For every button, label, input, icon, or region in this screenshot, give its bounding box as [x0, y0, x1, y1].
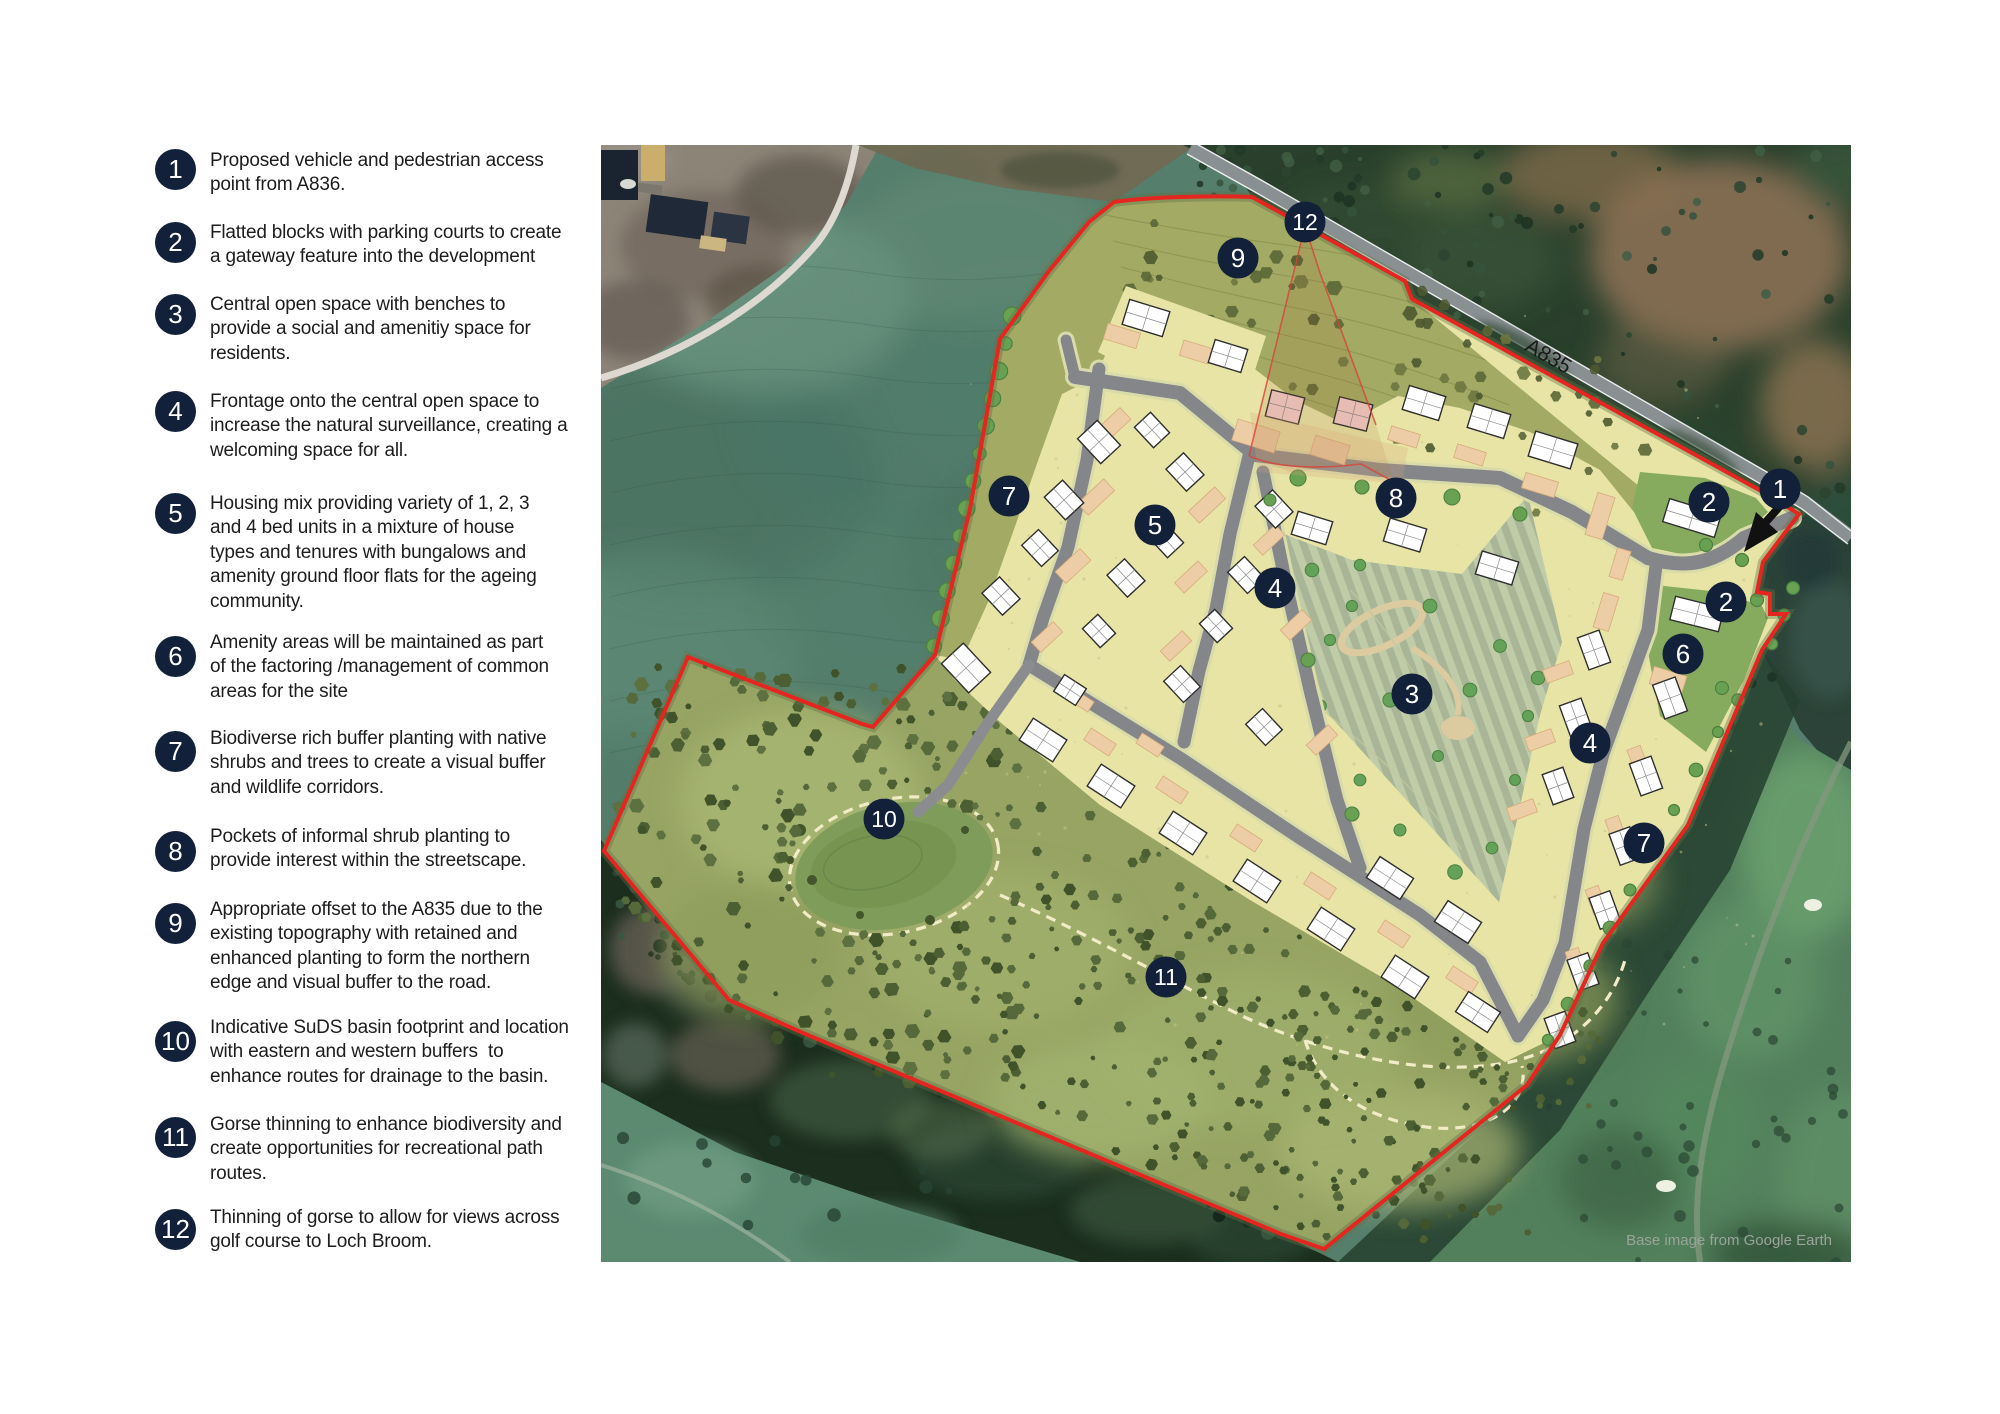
svg-text:6: 6	[1676, 639, 1690, 669]
svg-text:7: 7	[1637, 828, 1651, 858]
svg-text:8: 8	[1389, 483, 1403, 513]
svg-text:10: 10	[871, 806, 897, 832]
svg-text:5: 5	[1148, 510, 1162, 540]
svg-text:9: 9	[1231, 243, 1245, 273]
svg-text:3: 3	[1405, 679, 1419, 709]
svg-text:12: 12	[1292, 209, 1318, 235]
svg-text:11: 11	[1154, 964, 1178, 990]
svg-text:2: 2	[1702, 487, 1716, 517]
svg-text:7: 7	[1002, 481, 1016, 511]
svg-text:1: 1	[1773, 474, 1787, 504]
svg-text:2: 2	[1719, 587, 1733, 617]
svg-text:Base image from Google Earth: Base image from Google Earth	[1626, 1232, 1832, 1249]
svg-text:4: 4	[1268, 573, 1282, 603]
svg-text:4: 4	[1583, 728, 1597, 758]
